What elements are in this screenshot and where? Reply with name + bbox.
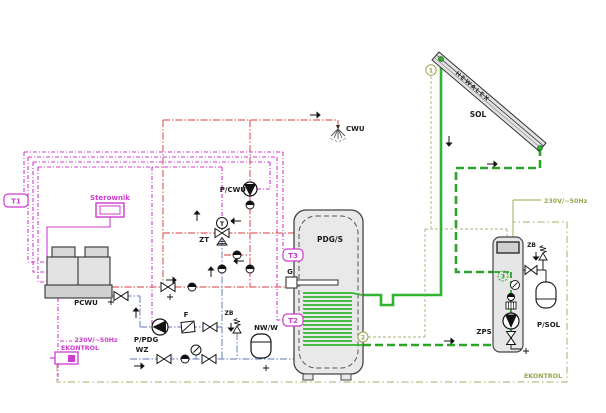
hp-fan-right (85, 247, 108, 257)
solar-supply-pipe (363, 59, 441, 305)
tank-label: PDG/S (317, 235, 343, 244)
sensor-2: 2 (358, 332, 368, 342)
hp-base (45, 285, 112, 298)
controller-sterownik: Sterownik (90, 194, 130, 217)
nww-label: NW/W (254, 324, 278, 332)
t3-label: T3 (288, 252, 298, 260)
psol-label: P/SOL (537, 321, 561, 329)
hp-fan-left (52, 247, 75, 257)
red-line-fittings (161, 251, 254, 292)
heat-pump-label: PCWU (74, 299, 98, 307)
sensor-badge-t3: T3 (283, 249, 303, 261)
filter-f: F (181, 311, 195, 333)
ppdg-label: P/PDG (134, 336, 159, 344)
sensor-badge-t1: T1 (4, 194, 28, 207)
zb-right-valve (539, 253, 547, 260)
solar-expansion-vessel (536, 282, 556, 308)
filter-label: F (184, 311, 189, 319)
sensor-1-label: 1 (429, 68, 433, 75)
pump-ppdg: P/PDG (134, 319, 168, 344)
controller-label: Sterownik (90, 194, 130, 202)
zt-label: ZT (199, 236, 209, 244)
cwu-tap: CWU (330, 125, 365, 142)
zb-right-label: ZB (527, 242, 536, 249)
sensor-badge-t2: T2 (283, 314, 303, 326)
zb-left-label: ZB (225, 310, 234, 317)
ekontrol-left-label: EKONTROL (61, 345, 99, 352)
sensor-3-label: 3 (501, 274, 505, 281)
t2-label: T2 (288, 317, 298, 325)
t1-label: T1 (11, 198, 21, 206)
wz-label: WZ (136, 346, 149, 354)
pump-pcwu-circulation: P/CWU (220, 182, 257, 209)
pcwu-pump-label: P/CWU (220, 186, 247, 194)
mixing-valve-zt: T ZT (199, 218, 229, 246)
zps-label: ZPS (476, 328, 491, 336)
heat-pump-unit (45, 247, 112, 298)
heater-label: G (287, 268, 293, 276)
collector-port-hot (439, 57, 444, 62)
pressure-gauge (191, 345, 201, 355)
zps-display (497, 242, 519, 253)
charge-valve (203, 323, 217, 332)
hydraulic-schematic: PCWU Sterownik T1 EKONTROL 230V/~50Hz PD… (0, 0, 606, 413)
power-wire-right (513, 200, 541, 237)
power-right-label: 230V/~50Hz (544, 198, 588, 205)
solar-branch-valve (525, 266, 537, 275)
collector-port-cold (538, 146, 543, 151)
tank-leg-right (341, 374, 351, 380)
ekontrol-right-label: EKONTROL (524, 373, 562, 380)
sensor-2-label: 2 (361, 335, 365, 342)
tank-leg-left (303, 374, 313, 380)
solar-safety-group: ZB (523, 242, 556, 308)
tank-pdgs: PDG/S (294, 210, 363, 380)
power-left-label: 230V/~50Hz (74, 337, 118, 344)
sol-label: SOL (470, 110, 487, 119)
schematic-page: PCWU Sterownik T1 EKONTROL 230V/~50Hz PD… (0, 0, 606, 413)
expansion-vessel-nww: NW/W (251, 324, 278, 358)
collector-brand: HEWALEX (454, 70, 491, 103)
cwu-label: CWU (346, 125, 365, 133)
solar-collector: HEWALEX SOL 1 (426, 52, 546, 151)
